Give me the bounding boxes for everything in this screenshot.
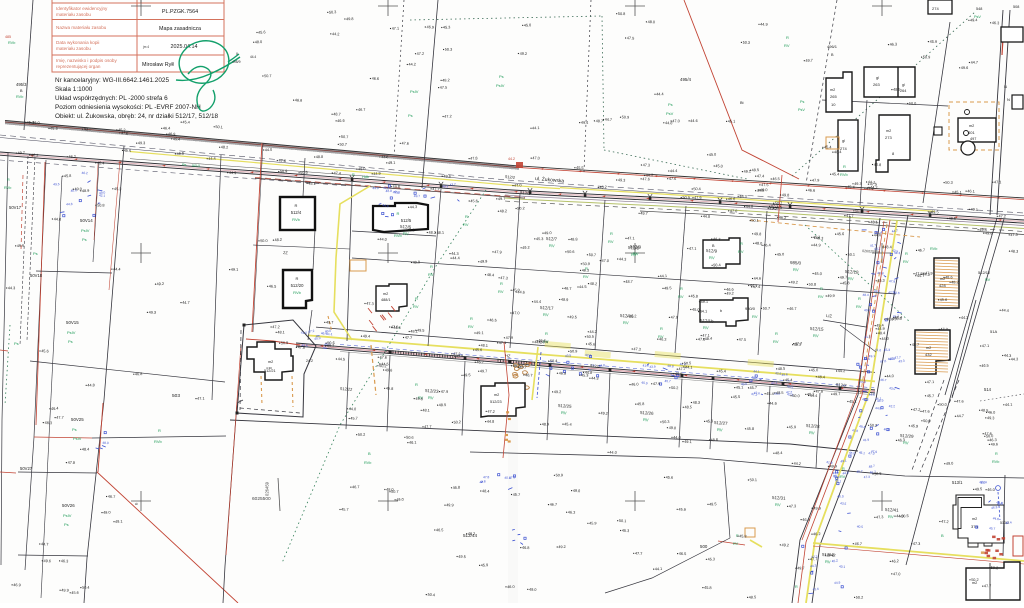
svg-text:46.7: 46.7 <box>352 485 359 489</box>
svg-text:Układ współrzędnych: PL -2000: Układ współrzędnych: PL -2000 strefa 6 <box>55 95 168 102</box>
svg-text:48.2: 48.2 <box>590 282 598 286</box>
svg-text:47.2: 47.2 <box>941 520 949 525</box>
svg-text:432: 432 <box>925 352 932 357</box>
svg-text:44.1: 44.1 <box>660 274 668 278</box>
svg-text:49.3: 49.3 <box>138 141 145 145</box>
svg-text:RV: RV <box>413 304 419 309</box>
svg-text:512/12: 512/12 <box>978 270 991 275</box>
svg-text:R: R <box>775 331 778 336</box>
svg-text:512/17: 512/17 <box>540 305 554 311</box>
svg-text:47.1: 47.1 <box>982 344 990 348</box>
svg-text:45.7: 45.7 <box>989 526 996 531</box>
svg-text:49.0: 49.0 <box>864 308 871 312</box>
svg-text:41.7: 41.7 <box>870 243 877 247</box>
svg-text:49.5: 49.5 <box>53 182 60 186</box>
svg-text:RV: RV <box>985 278 991 282</box>
svg-text:RVb: RVb <box>292 217 300 222</box>
svg-text:45.8: 45.8 <box>690 294 698 298</box>
svg-text:49.2: 49.2 <box>726 292 733 296</box>
svg-text:495/4: 495/4 <box>680 77 692 82</box>
svg-text:42.1: 42.1 <box>99 193 106 198</box>
svg-text:514: 514 <box>984 387 992 392</box>
svg-text:49.6: 49.6 <box>961 66 968 70</box>
svg-text:RV: RV <box>813 333 819 338</box>
svg-text:49.5: 49.5 <box>975 487 983 491</box>
svg-text:43.5: 43.5 <box>565 353 572 358</box>
svg-text:49.1: 49.1 <box>115 519 123 523</box>
svg-text:R: R <box>158 428 161 433</box>
svg-text:49.7: 49.7 <box>805 58 813 62</box>
svg-text:47.7: 47.7 <box>56 416 63 420</box>
svg-text:44.4: 44.4 <box>208 157 216 161</box>
svg-text:46.2: 46.2 <box>468 532 475 536</box>
svg-text:50.2: 50.2 <box>517 206 525 210</box>
svg-text:44.3: 44.3 <box>1004 354 1012 358</box>
svg-text:49.2: 49.2 <box>600 411 608 415</box>
svg-text:b: b <box>720 309 722 313</box>
svg-text:45.4: 45.4 <box>1005 520 1012 525</box>
svg-text:47.6: 47.6 <box>669 177 676 181</box>
svg-text:46.7: 46.7 <box>564 287 572 291</box>
svg-text:50.9: 50.9 <box>281 341 289 345</box>
svg-text:46.8: 46.8 <box>135 372 143 376</box>
svg-text:985/0: 985/0 <box>790 260 802 266</box>
svg-text:RV: RV <box>678 294 684 299</box>
svg-text:45.7: 45.7 <box>927 394 935 398</box>
svg-text:47.5: 47.5 <box>761 183 768 187</box>
svg-text:50.2: 50.2 <box>856 596 863 600</box>
svg-text:materiału zasobu: materiału zasobu <box>56 46 91 51</box>
svg-text:45.0: 45.0 <box>709 153 717 157</box>
svg-text:46.5: 46.5 <box>436 528 443 532</box>
svg-text:44.3: 44.3 <box>410 205 418 209</box>
svg-text:47.2: 47.2 <box>308 329 315 334</box>
svg-text:50.1: 50.1 <box>751 219 758 223</box>
svg-text:45.4: 45.4 <box>832 172 839 176</box>
svg-text:401: 401 <box>968 130 975 135</box>
svg-text:47.9: 47.9 <box>494 250 502 254</box>
svg-text:45.9: 45.9 <box>930 40 937 44</box>
svg-text:RVb: RVb <box>840 172 848 177</box>
svg-text:43.4: 43.4 <box>980 480 987 485</box>
svg-text:44.4: 44.4 <box>113 267 121 271</box>
svg-text:44.2: 44.2 <box>408 63 415 67</box>
svg-text:44.4: 44.4 <box>1001 308 1009 312</box>
svg-text:48.3: 48.3 <box>1011 249 1019 253</box>
svg-text:50.8: 50.8 <box>97 203 104 207</box>
svg-text:48.3: 48.3 <box>889 357 896 361</box>
svg-text:46.3: 46.3 <box>568 510 576 514</box>
svg-text:46.5: 46.5 <box>772 177 779 181</box>
svg-text:m2: m2 <box>886 129 891 133</box>
svg-text:45.0: 45.0 <box>715 164 722 168</box>
svg-text:46.3: 46.3 <box>897 438 905 442</box>
svg-text:49.9: 49.9 <box>61 588 69 592</box>
svg-text:48.4: 48.4 <box>487 273 495 277</box>
svg-text:RV: RV <box>793 267 799 272</box>
svg-text:47.2: 47.2 <box>444 114 452 118</box>
svg-text:48.0: 48.0 <box>755 242 762 246</box>
svg-text:46.9: 46.9 <box>426 25 434 29</box>
svg-text:RV: RV <box>818 294 824 299</box>
svg-text:45.0: 45.0 <box>692 308 700 312</box>
svg-text:44.9: 44.9 <box>373 172 381 176</box>
svg-text:45.2: 45.2 <box>862 397 869 401</box>
svg-text:m2: m2 <box>268 360 273 364</box>
svg-text:47.3: 47.3 <box>789 504 797 508</box>
svg-text:48.5: 48.5 <box>949 217 956 221</box>
svg-text:48.1: 48.1 <box>410 330 417 334</box>
svg-text:47.7: 47.7 <box>846 214 854 219</box>
svg-text:RV: RV <box>773 339 779 344</box>
svg-text:47.3: 47.3 <box>366 302 374 307</box>
svg-text:44.8: 44.8 <box>703 215 711 219</box>
svg-text:47.0: 47.0 <box>514 183 522 187</box>
svg-text:RV: RV <box>428 272 434 277</box>
svg-text:49.2: 49.2 <box>558 545 566 549</box>
svg-text:508: 508 <box>1013 5 1019 9</box>
svg-text:45.4: 45.4 <box>182 120 190 124</box>
svg-text:46.9: 46.9 <box>726 288 734 292</box>
svg-text:46.3: 46.3 <box>889 42 897 46</box>
svg-text:45.7: 45.7 <box>513 493 521 497</box>
svg-text:495/3: 495/3 <box>16 82 27 87</box>
svg-text:46.2: 46.2 <box>813 532 821 536</box>
svg-text:m2: m2 <box>969 124 974 128</box>
svg-text:47.1: 47.1 <box>197 397 204 401</box>
svg-text:49.1: 49.1 <box>970 208 978 212</box>
svg-text:49.6: 49.6 <box>17 244 25 248</box>
svg-text:46.6: 46.6 <box>808 188 816 192</box>
svg-text:46.3: 46.3 <box>61 559 69 563</box>
svg-text:50.1: 50.1 <box>848 253 855 257</box>
svg-text:49.6: 49.6 <box>385 368 393 372</box>
svg-text:45.4: 45.4 <box>564 422 572 426</box>
svg-text:46.6: 46.6 <box>728 197 735 201</box>
svg-text:44.1: 44.1 <box>700 309 708 313</box>
svg-text:48.5: 48.5 <box>684 405 691 409</box>
svg-text:RV: RV <box>468 324 474 329</box>
svg-text:49.1: 49.1 <box>476 331 483 335</box>
svg-text:512/2: 512/2 <box>505 174 516 180</box>
svg-text:10: 10 <box>831 102 836 107</box>
svg-text:45.8: 45.8 <box>747 427 754 431</box>
svg-text:44.9: 44.9 <box>760 23 768 27</box>
svg-text:50.8: 50.8 <box>809 283 816 287</box>
svg-text:512/28: 512/28 <box>806 423 820 429</box>
svg-text:44.1: 44.1 <box>868 180 876 184</box>
svg-text:45.6: 45.6 <box>258 30 266 34</box>
svg-text:50V17: 50V17 <box>9 205 22 210</box>
svg-text:497: 497 <box>970 137 976 141</box>
svg-text:48.2: 48.2 <box>951 280 958 284</box>
svg-text:50.1: 50.1 <box>750 478 757 482</box>
svg-text:49.6: 49.6 <box>43 559 51 563</box>
svg-text:50.2: 50.2 <box>379 364 387 368</box>
svg-text:47.1: 47.1 <box>994 180 1001 184</box>
svg-text:RV: RV <box>608 239 614 244</box>
svg-text:49.9: 49.9 <box>446 503 453 507</box>
svg-text:50.7: 50.7 <box>264 74 271 78</box>
svg-text:49.1: 49.1 <box>684 440 692 444</box>
svg-text:47.6: 47.6 <box>880 359 887 364</box>
svg-text:49.9: 49.9 <box>456 354 463 358</box>
svg-text:45.6: 45.6 <box>666 476 673 480</box>
svg-text:44.2: 44.2 <box>332 32 340 36</box>
svg-text:48.0: 48.0 <box>255 40 263 44</box>
svg-text:50.4: 50.4 <box>713 263 721 267</box>
svg-text:materiału zasobu: materiału zasobu <box>56 12 91 17</box>
svg-text:m2: m2 <box>830 88 835 92</box>
svg-text:42.6: 42.6 <box>753 391 760 396</box>
svg-text:50.0: 50.0 <box>792 394 800 398</box>
svg-text:RV: RV <box>543 312 549 317</box>
svg-text:44.1: 44.1 <box>532 126 540 130</box>
svg-text:49.4: 49.4 <box>363 334 371 338</box>
svg-text:PsV: PsV <box>798 108 805 112</box>
svg-text:PsIV: PsIV <box>410 89 419 94</box>
svg-text:48.9: 48.9 <box>542 422 549 426</box>
svg-text:50.6: 50.6 <box>567 250 574 254</box>
svg-text:PsV: PsV <box>666 111 674 116</box>
svg-text:49.2: 49.2 <box>157 282 165 286</box>
svg-text:44.6: 44.6 <box>690 119 698 123</box>
svg-text:44.0: 44.0 <box>379 237 387 241</box>
svg-text:RVb: RVb <box>394 233 402 238</box>
svg-text:Nazwa materiału zasobu: Nazwa materiału zasobu <box>56 25 107 30</box>
svg-text:50.4: 50.4 <box>82 586 89 590</box>
svg-text:48.4: 48.4 <box>775 451 783 455</box>
svg-text:47.5: 47.5 <box>440 86 447 90</box>
svg-text:503: 503 <box>172 393 180 399</box>
svg-text:49.7: 49.7 <box>640 212 648 216</box>
svg-text:44.2: 44.2 <box>838 369 845 373</box>
svg-text:50.1: 50.1 <box>619 519 627 523</box>
svg-text:47.9: 47.9 <box>812 178 819 182</box>
svg-text:Imię, nazwisko i podpis osoby: Imię, nazwisko i podpis osoby <box>56 58 117 63</box>
svg-text:m2: m2 <box>972 517 977 521</box>
svg-text:R: R <box>415 382 418 387</box>
svg-text:49.3: 49.3 <box>442 184 449 188</box>
svg-text:512/26: 512/26 <box>640 410 654 416</box>
svg-text:50.3: 50.3 <box>329 10 337 14</box>
svg-text:026459: 026459 <box>265 481 270 496</box>
svg-text:47.3: 47.3 <box>876 515 884 519</box>
svg-text:45.8: 45.8 <box>739 534 747 538</box>
svg-text:45.1: 45.1 <box>954 190 962 194</box>
svg-text:45.6: 45.6 <box>41 349 49 353</box>
svg-text:512/23: 512/23 <box>425 388 439 394</box>
svg-text:44.7: 44.7 <box>971 61 978 65</box>
svg-text:46.0: 46.0 <box>631 382 639 386</box>
svg-text:49.0: 49.0 <box>358 167 366 171</box>
svg-text:47.2: 47.2 <box>272 325 279 329</box>
svg-text:46.7: 46.7 <box>854 542 862 546</box>
svg-text:48.2: 48.2 <box>221 145 228 149</box>
svg-text:48.4: 48.4 <box>834 150 842 154</box>
svg-text:RVb: RVb <box>154 439 162 444</box>
svg-text:49.1: 49.1 <box>231 268 239 272</box>
svg-text:49.0: 49.0 <box>529 588 537 592</box>
svg-text:50.6: 50.6 <box>300 171 308 175</box>
svg-text:gl: gl <box>842 139 845 143</box>
svg-text:40.5: 40.5 <box>857 525 864 529</box>
svg-text:49.3: 49.3 <box>854 182 861 186</box>
svg-text:50.4: 50.4 <box>895 316 903 320</box>
svg-text:47.3: 47.3 <box>913 542 920 546</box>
svg-text:50.7: 50.7 <box>775 201 782 205</box>
svg-text:265: 265 <box>830 94 837 99</box>
svg-text:47.9: 47.9 <box>871 449 878 454</box>
svg-text:R: R <box>397 211 400 216</box>
svg-text:RVb: RVb <box>992 460 999 464</box>
svg-text:RVb: RVb <box>16 95 23 99</box>
svg-text:48.2: 48.2 <box>274 238 282 242</box>
svg-text:50.9: 50.9 <box>582 262 589 266</box>
svg-text:48.9: 48.9 <box>413 260 421 264</box>
svg-text:50.2: 50.2 <box>671 386 678 390</box>
svg-text:46.3: 46.3 <box>659 337 667 341</box>
svg-text:II: II <box>236 52 238 56</box>
svg-text:45.2: 45.2 <box>860 380 867 384</box>
svg-text:45.9: 45.9 <box>678 508 686 512</box>
svg-text:47.5: 47.5 <box>739 338 746 342</box>
svg-text:45.9: 45.9 <box>911 424 919 428</box>
svg-text:50.9: 50.9 <box>682 196 690 200</box>
svg-text:44.3: 44.3 <box>810 564 817 569</box>
svg-text:R: R <box>465 214 468 219</box>
svg-text:48.6: 48.6 <box>945 275 952 279</box>
svg-text:500: 500 <box>700 544 708 549</box>
svg-text:44.7: 44.7 <box>41 542 49 546</box>
svg-text:50.7: 50.7 <box>339 143 346 147</box>
svg-text:496/1: 496/1 <box>827 44 838 49</box>
svg-text:46.8: 46.8 <box>453 486 461 490</box>
svg-text:41.5: 41.5 <box>864 335 871 340</box>
svg-text:46.0: 46.0 <box>987 488 994 492</box>
svg-text:548: 548 <box>976 7 982 11</box>
svg-text:512/18: 512/18 <box>845 269 859 275</box>
svg-text:48.6: 48.6 <box>781 373 788 377</box>
svg-text:980/0: 980/0 <box>745 306 756 311</box>
svg-text:50.0: 50.0 <box>386 350 393 354</box>
svg-text:48.5: 48.5 <box>749 595 757 599</box>
svg-text:44.3: 44.3 <box>591 376 599 380</box>
svg-text:45.1: 45.1 <box>728 119 735 123</box>
svg-text:R: R <box>295 203 298 208</box>
svg-text:50V18: 50V18 <box>30 273 43 278</box>
svg-text:512/27: 512/27 <box>714 420 728 426</box>
svg-text:44.9: 44.9 <box>834 580 841 585</box>
svg-text:47.6: 47.6 <box>642 177 650 181</box>
svg-text:RVb: RVb <box>930 247 937 251</box>
svg-text:N: N <box>1004 84 1007 89</box>
svg-text:R: R <box>786 35 789 40</box>
svg-text:48.2: 48.2 <box>807 392 815 396</box>
svg-text:44.9: 44.9 <box>813 243 820 247</box>
svg-text:46.1: 46.1 <box>875 396 882 401</box>
svg-text:RV: RV <box>643 417 649 422</box>
svg-text:47.0: 47.0 <box>893 572 901 576</box>
svg-text:49.7: 49.7 <box>840 275 848 279</box>
svg-text:50.5: 50.5 <box>587 335 594 339</box>
svg-text:49.0: 49.0 <box>573 489 581 493</box>
svg-text:50.2: 50.2 <box>358 433 366 437</box>
svg-text:46.4: 46.4 <box>51 407 59 411</box>
svg-text:50V14: 50V14 <box>80 218 93 223</box>
svg-text:45.2: 45.2 <box>599 185 607 189</box>
svg-text:47.4: 47.4 <box>333 171 341 175</box>
svg-text:46.4: 46.4 <box>802 518 810 522</box>
svg-text:RV: RV <box>428 395 434 400</box>
svg-text:512/4: 512/4 <box>291 210 302 215</box>
svg-text:RV: RV <box>809 430 815 435</box>
svg-text:45.6: 45.6 <box>588 342 596 346</box>
svg-text:RV: RV <box>717 427 723 432</box>
svg-text:m2: m2 <box>383 292 388 296</box>
svg-text:49.8: 49.8 <box>392 185 399 189</box>
svg-text:47.7: 47.7 <box>432 187 439 191</box>
svg-text:49.9: 49.9 <box>827 294 834 298</box>
svg-text:48.3: 48.3 <box>794 343 802 347</box>
svg-text:48.1: 48.1 <box>84 127 91 131</box>
svg-text:44.3: 44.3 <box>619 257 627 261</box>
svg-text:Poziom odniesienia wysokości:: Poziom odniesienia wysokości: PL -EVRF 2… <box>55 104 201 111</box>
svg-text:24.2: 24.2 <box>306 359 313 363</box>
svg-text:495/9: 495/9 <box>232 60 241 64</box>
svg-text:50.2: 50.2 <box>971 578 978 582</box>
svg-text:49.2: 49.2 <box>790 281 797 285</box>
svg-text:44.3: 44.3 <box>894 251 901 256</box>
svg-text:PL.PZGK.7564: PL.PZGK.7564 <box>162 9 198 15</box>
svg-text:44.6: 44.6 <box>869 393 875 397</box>
svg-text:49.7: 49.7 <box>498 197 506 201</box>
svg-text:49.1: 49.1 <box>701 300 709 304</box>
svg-text:51A: 51A <box>990 329 997 334</box>
svg-text:46.3: 46.3 <box>713 237 721 241</box>
svg-text:50.6: 50.6 <box>406 436 414 440</box>
svg-text:50.2: 50.2 <box>991 566 999 570</box>
svg-text:44.2: 44.2 <box>793 462 801 466</box>
svg-text:49.8: 49.8 <box>782 193 790 197</box>
svg-text:45.8: 45.8 <box>386 387 394 391</box>
svg-text:44.2: 44.2 <box>870 186 878 190</box>
svg-text:46.4: 46.4 <box>163 126 170 130</box>
svg-text:263: 263 <box>873 82 880 87</box>
svg-text:41.8: 41.8 <box>643 363 649 367</box>
svg-text:46.2: 46.2 <box>68 155 75 159</box>
svg-text:47.0: 47.0 <box>532 156 539 160</box>
svg-text:Ps: Ps <box>408 113 413 118</box>
svg-text:40.1: 40.1 <box>839 565 846 569</box>
svg-text:44.0: 44.0 <box>874 233 882 237</box>
svg-text:46.6: 46.6 <box>372 77 380 81</box>
svg-text:47.9: 47.9 <box>671 315 678 319</box>
svg-text:47.8: 47.8 <box>889 279 896 283</box>
svg-text:50.3: 50.3 <box>743 41 751 45</box>
svg-text:49.2: 49.2 <box>522 246 530 250</box>
svg-text:50V15: 50V15 <box>66 320 79 325</box>
svg-text:44.0: 44.0 <box>886 374 894 378</box>
svg-text:Nr kancelaryjny: WG-III.6642.1: Nr kancelaryjny: WG-III.6642.1461.2025 <box>55 77 169 84</box>
svg-text:48.3: 48.3 <box>693 401 700 405</box>
svg-text:45.8: 45.8 <box>842 281 850 285</box>
svg-text:45.4: 45.4 <box>824 145 832 149</box>
svg-text:44.0: 44.0 <box>265 148 273 152</box>
svg-text:44.4: 44.4 <box>250 55 256 59</box>
svg-text:46.9: 46.9 <box>559 371 567 375</box>
svg-text:428: 428 <box>939 283 946 288</box>
